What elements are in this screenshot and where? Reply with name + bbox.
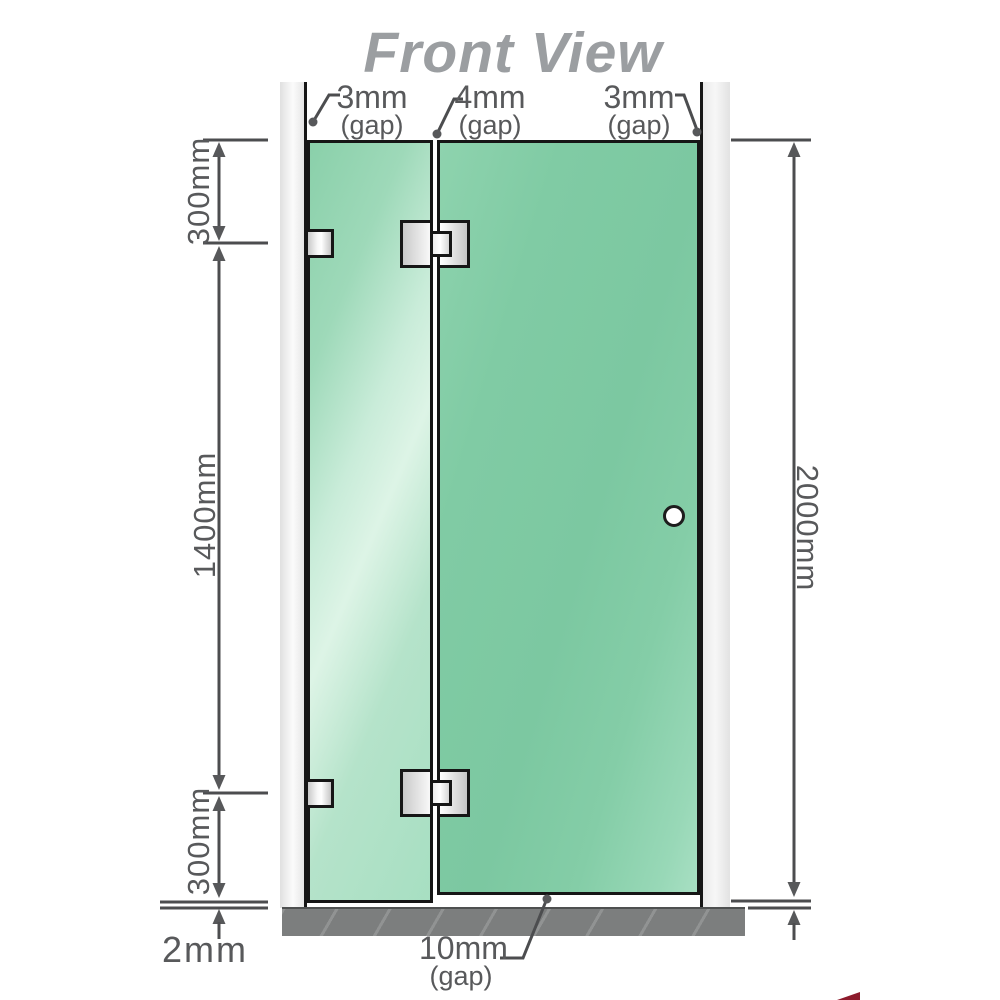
door-handle-knob <box>663 505 685 527</box>
right-wall-post <box>700 82 730 908</box>
leader-dot-icon <box>309 118 318 127</box>
dim-label-total-height: 2000mm <box>789 465 825 592</box>
gap-left-value: 3mm <box>329 81 415 113</box>
gap-middle-suffix: (gap) <box>447 112 533 139</box>
front-view-diagram: Front View 300mm 1400mm 300mm 2000mm 2mm… <box>0 0 1000 1000</box>
dim-label-base-clearance: 2mm <box>162 929 248 971</box>
bottom-hinge-knuckle <box>433 780 452 806</box>
left-wall-post <box>280 82 307 908</box>
gap-right-suffix: (gap) <box>597 112 681 139</box>
leader-dot-icon <box>433 130 442 139</box>
dim-label-segment-bottom: 300mm <box>181 787 217 895</box>
gap-left-suffix: (gap) <box>329 112 415 139</box>
gap-label-bottom: 10mm (gap) <box>419 932 503 990</box>
gap-bottom-suffix: (gap) <box>419 963 503 990</box>
bottom-wall-bracket <box>305 779 334 808</box>
dim-label-segment-top: 300mm <box>181 137 217 245</box>
floor-base <box>282 907 745 936</box>
leader-dot-icon <box>543 895 552 904</box>
arrowhead-up-icon <box>788 142 801 157</box>
gap-label-left: 3mm (gap) <box>329 81 415 139</box>
dim-label-segment-middle: 1400mm <box>187 452 223 579</box>
arrowhead-up-icon <box>213 246 226 261</box>
gap-label-middle: 4mm (gap) <box>447 81 533 139</box>
diagram-title: Front View <box>363 20 662 86</box>
arrowhead-down-icon <box>788 882 801 897</box>
gap-middle-value: 4mm <box>447 81 533 113</box>
gap-label-right: 3mm (gap) <box>597 81 681 139</box>
arrowhead-up-icon <box>213 909 226 924</box>
top-wall-bracket <box>305 229 334 258</box>
top-hinge-knuckle <box>433 231 452 257</box>
arrowhead-up-icon <box>788 910 801 925</box>
gap-right-value: 3mm <box>597 81 681 113</box>
gap-bottom-value: 10mm <box>419 932 503 964</box>
door-glass-panel <box>437 140 700 895</box>
clipped-logo-fragment <box>837 992 860 1000</box>
